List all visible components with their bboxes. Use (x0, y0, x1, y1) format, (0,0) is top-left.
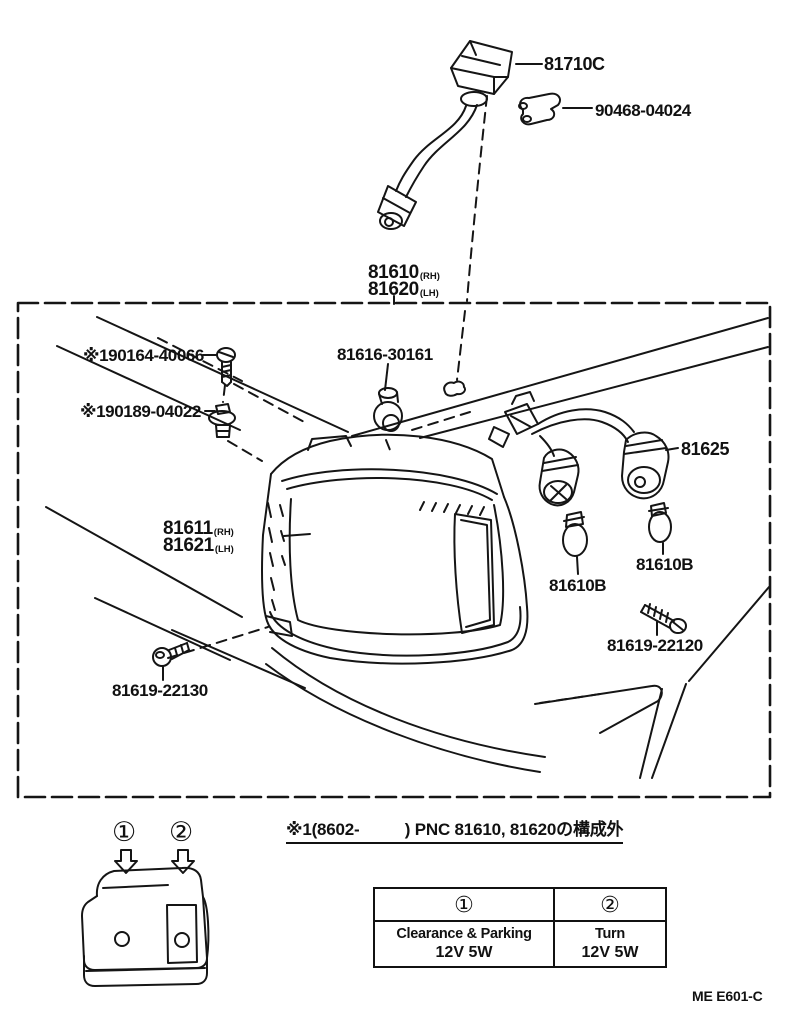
bulb-left-icon (563, 512, 587, 556)
screw-lower-left-icon (153, 643, 189, 666)
parts-diagram-page: 81710C 90468-04024 81610 (RH) 81620 (LH)… (0, 0, 792, 1032)
lamp-assy-lh-side: (LH) (420, 289, 439, 299)
page-code: ME E601-C (692, 988, 763, 1004)
inset-marker-1: ① (112, 819, 136, 846)
part-label-grommet: ※190189-04022 (80, 403, 201, 420)
part-label-screw-lower-left: 81619-22130 (112, 682, 208, 699)
lens-rh-side: (RH) (214, 528, 234, 538)
part-label-screw-upper: ※190164-40066 (83, 347, 204, 364)
wire-harness-icon (489, 392, 669, 505)
legend-bulb-1-spec: 12V 5W (436, 943, 493, 962)
dashed-boundary-box (18, 303, 770, 797)
part-label-marker-lamp: 81710C (544, 55, 605, 73)
inset-lamp-icon (82, 850, 208, 986)
grommet-icon (209, 404, 235, 437)
legend-cell-1: Clearance & Parking 12V 5W (375, 922, 555, 966)
legend-header-1: ① (375, 889, 555, 922)
bulb-legend-table: ① ② Clearance & Parking 12V 5W Turn 12V … (373, 887, 667, 968)
legend-header-1-number: ① (454, 894, 474, 916)
bulb-right-icon (649, 503, 671, 542)
lens-lh-side: (LH) (215, 545, 234, 555)
legend-header-2: ② (555, 889, 665, 922)
body-context-lines (46, 317, 769, 778)
bulb-socket-icon (374, 388, 402, 431)
legend-bulb-2-name: Turn (595, 925, 625, 943)
part-label-lens: 81611 (RH) 81621 (LH) (163, 519, 234, 553)
screw-upper-icon (217, 348, 235, 386)
part-label-socket: 81616-30161 (337, 346, 433, 363)
legend-cell-2: Turn 12V 5W (555, 922, 665, 966)
screw-lower-right-icon (641, 604, 686, 633)
part-label-bulb-right: 81610B (636, 556, 693, 573)
inset-marker-2: ② (169, 819, 193, 846)
legend-header-2-number: ② (600, 894, 620, 916)
lamp-assy-rh-side: (RH) (420, 272, 440, 282)
legend-bulb-2-spec: 12V 5W (582, 943, 639, 962)
lamp-assy-lh-number: 81620 (368, 280, 419, 299)
part-label-lamp-assy: 81610 (RH) 81620 (LH) (368, 263, 440, 297)
lens-lh-number: 81621 (163, 536, 214, 555)
legend-bulb-1-name: Clearance & Parking (396, 925, 531, 943)
part-label-screw-lower-right: 81619-22120 (607, 637, 703, 654)
corner-lamp-icon (262, 435, 527, 664)
part-label-harness: 81625 (681, 440, 729, 458)
diagram-linework (0, 0, 792, 1032)
part-label-bulb-left: 81610B (549, 577, 606, 594)
exclusion-note: ※1(8602- ) PNC 81610, 81620の構成外 (286, 821, 623, 844)
part-label-clamp: 90468-04024 (595, 102, 691, 119)
marker-lamp-icon (378, 41, 512, 229)
clamp-icon (519, 94, 560, 125)
